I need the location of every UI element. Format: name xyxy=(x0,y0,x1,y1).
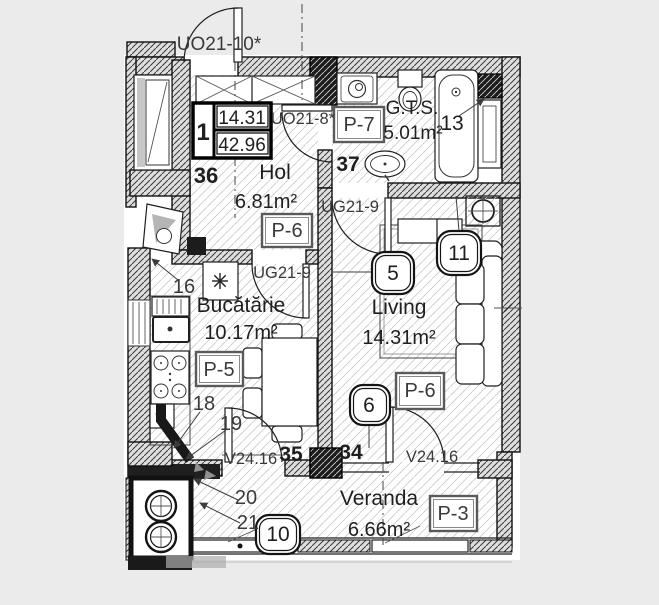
veranda-finish-label: P-3 xyxy=(437,503,468,525)
hol-finish-label: P-6 xyxy=(271,220,302,242)
callout-5: 5 xyxy=(387,262,399,285)
leader-20: 20 xyxy=(235,487,257,509)
leader-18: 18 xyxy=(193,393,215,415)
gts-room-number: 37 xyxy=(336,153,359,176)
bath-door-jamb xyxy=(318,150,332,188)
veranda-room-name: Veranda xyxy=(340,487,419,510)
chair xyxy=(243,348,262,378)
unit-living-area: 14.31 xyxy=(218,108,266,129)
dining-table xyxy=(262,338,317,426)
kitchen-room-number: 35 xyxy=(279,443,303,466)
leader-21: 21 xyxy=(237,512,259,534)
hol-room-number: 36 xyxy=(194,163,218,188)
kitchen-room-area: 10.17m² xyxy=(204,322,278,344)
floor-plan-drawing: 1 14.31 42.96 P-6 P-7 P-5 P-6 P-3 5 11 6… xyxy=(0,0,659,600)
callout-10: 10 xyxy=(266,523,289,546)
veranda-pier xyxy=(310,448,342,478)
kitchen-finish-label: P-5 xyxy=(203,359,234,381)
gts-room-name: G.T.S. xyxy=(386,98,439,119)
kitchen-living-wall xyxy=(318,188,332,462)
gts-finish-label: P-7 xyxy=(343,114,374,136)
living-room-area: 14.31m² xyxy=(362,327,436,349)
unit-area-table: 1 14.31 42.96 xyxy=(193,103,271,158)
hol-room-name: Hol xyxy=(259,161,291,184)
column-block xyxy=(187,237,206,255)
sofa-back xyxy=(482,256,502,386)
unit-number: 1 xyxy=(196,119,209,146)
shaft-duct xyxy=(478,100,501,168)
hol-room-area: 6.81m² xyxy=(235,191,298,213)
right-wall xyxy=(502,57,520,452)
kitchen-door-jamb xyxy=(306,250,318,264)
ceiling-vent xyxy=(466,196,500,226)
gts-room-area: 5.01m² xyxy=(383,123,442,144)
leader-19: 19 xyxy=(220,413,242,435)
entrance-door-label: UO21-10* xyxy=(177,34,262,55)
living-veranda-window-label: V24.16 xyxy=(406,448,458,466)
living-door-leaf xyxy=(385,198,391,254)
sofa-cushion xyxy=(456,304,484,344)
shaft-dark xyxy=(478,74,502,98)
veranda-corner-block xyxy=(478,460,512,478)
fridge-snowflake-icon xyxy=(212,273,228,289)
leader-16: 16 xyxy=(173,276,195,298)
callout-6: 6 xyxy=(363,394,375,417)
boiler-circle xyxy=(157,229,172,244)
unit-total-area: 42.96 xyxy=(218,135,266,156)
kitchen-veranda-window-label: V24.16 xyxy=(225,450,277,468)
living-room-name: Living xyxy=(372,296,427,319)
washing-machine xyxy=(337,73,377,104)
kitchen-door-label: UG21-9 xyxy=(253,264,311,282)
wardrobe xyxy=(196,76,315,104)
chair xyxy=(272,426,302,442)
kitchen-room-name: Bucătărie xyxy=(197,294,286,317)
left-wall-band xyxy=(130,170,190,196)
floor-plan-page: 1 14.31 42.96 P-6 P-7 P-5 P-6 P-3 5 11 6… xyxy=(0,0,659,600)
living-room-number: 34 xyxy=(339,441,363,464)
drainer xyxy=(152,297,189,316)
callout-11: 11 xyxy=(448,242,470,265)
veranda-room-area: 6.66m² xyxy=(348,519,411,541)
living-finish-label: P-6 xyxy=(404,380,435,402)
sofa-cushion xyxy=(456,344,484,384)
bathroom-door-label: UO21-8* xyxy=(271,110,336,128)
toilet-tank xyxy=(398,70,422,87)
living-door-label: UG21-9 xyxy=(321,198,379,216)
callout-13: 13 xyxy=(440,112,463,135)
exterior-wall-stub xyxy=(127,42,175,57)
kitchen-sw-wall xyxy=(128,442,172,466)
